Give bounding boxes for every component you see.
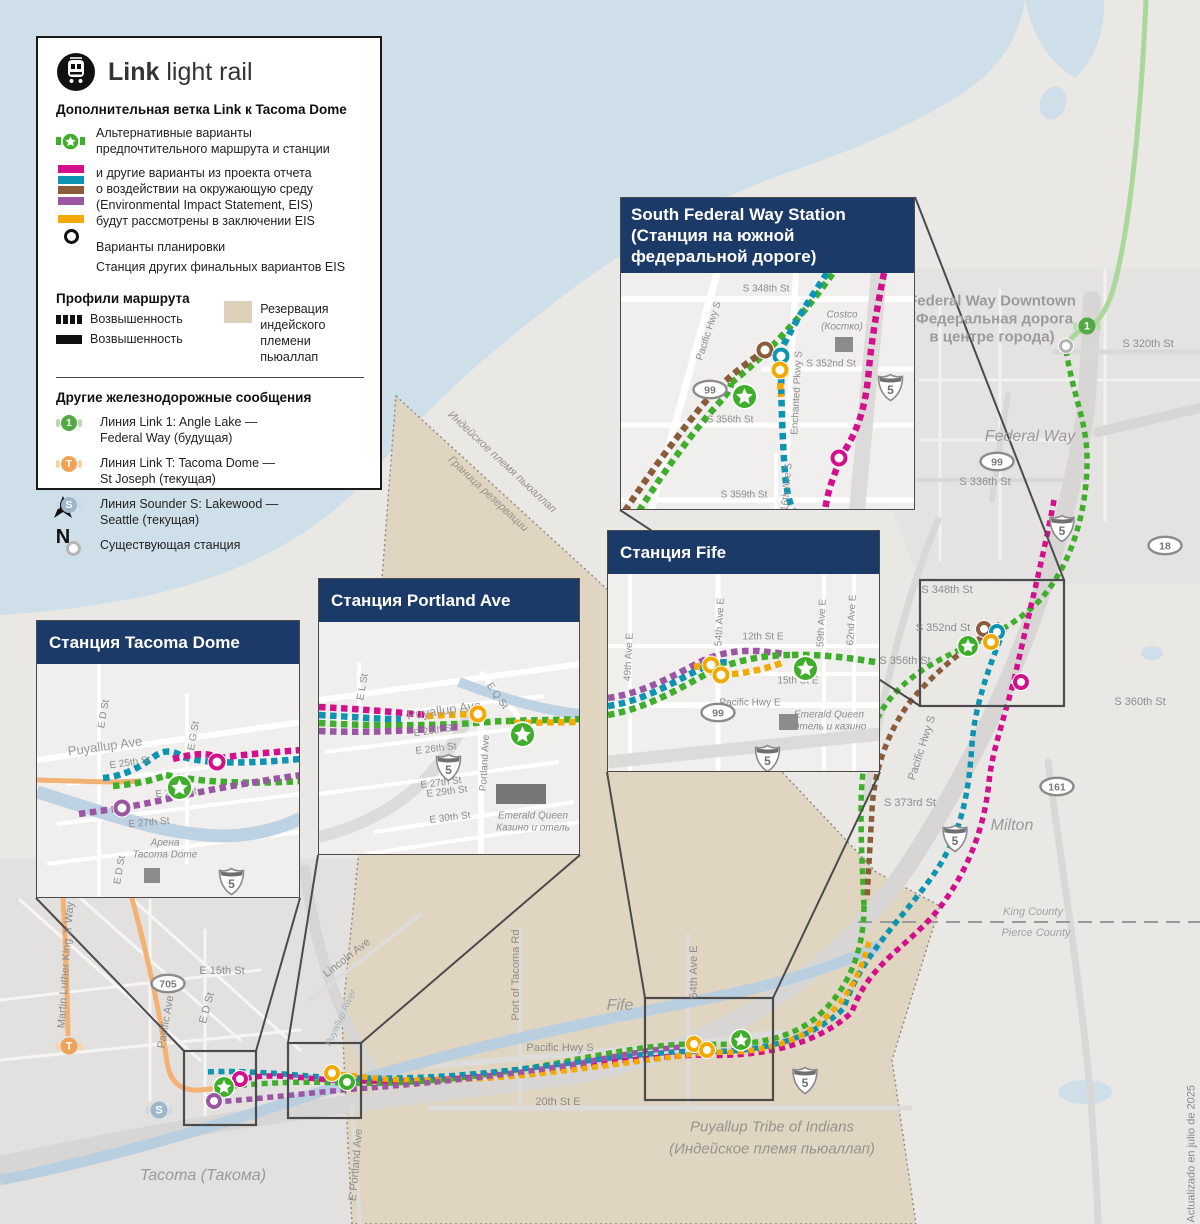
label-emerald-queen: Emerald Queen xyxy=(794,710,864,721)
inset-portland-map: Puyallup AveE 25th StE 26th StE Q StE L … xyxy=(319,622,579,854)
rail-item-existing: Существующая станция xyxy=(56,537,364,556)
purple-swatch xyxy=(58,197,84,205)
label-s-348th-st: S 348th St xyxy=(743,284,790,295)
design-options-label: Варианты планировки xyxy=(96,239,345,255)
link1-line-2: Federal Way (будущая) xyxy=(100,430,257,446)
legend-divider xyxy=(56,377,364,378)
inset-south-federal-way: South Federal Way Station(Станция на южн… xyxy=(620,197,915,510)
yellow-swatch xyxy=(58,215,84,223)
link1-line-1: Линия Link 1: Angle Lake — xyxy=(100,414,257,430)
profile-dashed-label: Возвышенность xyxy=(90,312,183,326)
label-12th-st-e: 12th St E xyxy=(742,632,783,643)
label-костко: (Костко) xyxy=(821,322,863,333)
label-казино-и-отель: Казино и отель xyxy=(496,823,570,834)
inset-title-line: Станция Portland Ave xyxy=(331,590,567,611)
legend-subtitle: Дополнительная ветка Link к Tacoma Dome xyxy=(56,102,364,117)
inset-portland-title: Станция Portland Ave xyxy=(319,579,579,622)
preferred-route-label: Альтернативные варианты предпочтительног… xyxy=(96,125,330,157)
profile-solid-row: Возвышенность xyxy=(56,332,224,346)
profile-dashed-row: Возвышенность xyxy=(56,312,224,326)
label-отель-и-казино: Отель и казино xyxy=(792,722,867,733)
linkt-line-1: Линия Link T: Tacoma Dome — xyxy=(100,455,275,471)
preferred-line-1: Альтернативные варианты xyxy=(96,125,330,141)
brand-bold: Link xyxy=(108,58,159,86)
inset-fife: Станция Fife xyxy=(607,530,880,772)
inset-sfw-title: South Federal Way Station(Станция на южн… xyxy=(621,198,914,273)
brand-title: Link light rail xyxy=(108,58,253,87)
linkt-line-2: St Joseph (текущая) xyxy=(100,471,275,487)
reservation-label: Резервация индейского племени пьюаллап xyxy=(260,301,364,365)
preferred-line-2: предпочтительного маршрута и станции xyxy=(96,141,330,157)
existing-station-label: Существующая станция xyxy=(100,537,240,553)
brand-row: Link light rail xyxy=(56,52,364,92)
eis-line-1: и другие варианты из проекта отчета xyxy=(96,165,345,181)
inset-portland-ave: Станция Portland Ave xyxy=(318,578,580,855)
other-rail-title: Другие железнодорожные сообщения xyxy=(56,390,364,405)
eis-label: и другие варианты из проекта отчета о во… xyxy=(96,165,345,275)
inset-title-line: South Federal Way Station xyxy=(631,204,904,225)
profiles-title: Профили маршрута xyxy=(56,291,224,306)
svg-text:5: 5 xyxy=(764,754,771,768)
sounder-badge-icon: S xyxy=(56,497,90,513)
other-station-label: Станция других финальных вариантов EIS xyxy=(96,259,345,275)
svg-text:99: 99 xyxy=(712,707,724,719)
legend-preferred-row: Альтернативные варианты предпочтительног… xyxy=(56,125,364,157)
teal-swatch xyxy=(58,176,84,184)
inset-title-line: федеральной дороге) xyxy=(631,246,904,267)
eis-line-3: (Environmental Impact Statement, EIS) xyxy=(96,197,345,213)
legend-panel: Link light rail Дополнительная ветка Lin… xyxy=(36,36,382,490)
rail-item-sounder: S Линия Sounder S: Lakewood — Seattle (т… xyxy=(56,496,364,528)
inset-tacoma-map: E D StPuyallup AveE 25th StE G StE 26th … xyxy=(37,664,299,897)
link1-badge-icon: 1 xyxy=(56,415,90,431)
svg-text:5: 5 xyxy=(445,763,452,777)
star-station-icon xyxy=(62,133,79,150)
inset-sfw-map: S 348th StPacific Hwy SCostco(Костко)S 3… xyxy=(621,273,914,509)
svg-text:5: 5 xyxy=(887,383,894,397)
map-stage: Federal Way Downtown(Федеральная дорогав… xyxy=(0,0,1200,1224)
inset-title-line: (Станция на южной xyxy=(631,225,904,246)
label-s-352nd-st: S 352nd St xyxy=(806,359,855,370)
link-train-icon xyxy=(56,52,96,92)
inset-tacoma-title: Станция Tacoma Dome xyxy=(37,621,299,664)
reservation-line-1: Резервация xyxy=(260,301,364,317)
svg-text:5: 5 xyxy=(228,877,235,891)
inset-fife-map: 49th Ave E54th Ave E12th St E59th Ave E6… xyxy=(608,574,879,771)
svg-text:99: 99 xyxy=(704,384,716,396)
inset-title-line: Станция Tacoma Dome xyxy=(49,632,287,653)
inset-title-line: Станция Fife xyxy=(620,542,867,563)
station-yellow xyxy=(772,362,789,379)
station-yellow xyxy=(713,667,730,684)
legend-eis-row: и другие варианты из проекта отчета о во… xyxy=(56,165,364,275)
inset-fife-title: Станция Fife xyxy=(608,531,879,574)
elevated-dashed-icon xyxy=(56,315,82,324)
sounder-line-2: Seattle (текущая) xyxy=(100,512,278,528)
label-s-359th-st: S 359th St xyxy=(721,490,768,501)
label-tacoma-dome: Tacoma Dome xyxy=(133,850,198,861)
magenta-swatch xyxy=(58,165,84,173)
rail-item-linkt: T Линия Link T: Tacoma Dome — St Joseph … xyxy=(56,455,364,487)
profiles-section: Профили маршрута Возвышенность Возвышенн… xyxy=(56,279,364,365)
elevated-solid-icon xyxy=(56,335,82,344)
reservation-row: Резервация индейского племени пьюаллап xyxy=(224,301,364,365)
station-magenta xyxy=(209,754,226,771)
reservation-line-2: индейского xyxy=(260,317,364,333)
station-magenta xyxy=(831,450,848,467)
other-station-icon xyxy=(64,229,79,244)
sounder-line-1: Линия Sounder S: Lakewood — xyxy=(100,496,278,512)
eis-line-2: о воздействии на окружающую среду xyxy=(96,181,345,197)
label-emerald-queen: Emerald Queen xyxy=(498,811,568,822)
label-арена: Арена xyxy=(151,838,180,849)
label-costco: Costco xyxy=(826,310,857,321)
profile-solid-label: Возвышенность xyxy=(90,332,183,346)
reservation-line-3: племени пьюаллап xyxy=(260,333,364,365)
update-credit: Actualizado en julio de 2025 xyxy=(1186,1085,1198,1223)
brand-rest: light rail xyxy=(159,58,252,86)
eis-line-4: будут рассмотрены в заключении EIS xyxy=(96,213,345,229)
reservation-swatch xyxy=(224,301,252,323)
inset-sfw-svg xyxy=(621,273,914,509)
rail-item-link1: 1 Линия Link 1: Angle Lake — Federal Way… xyxy=(56,414,364,446)
station-yellow xyxy=(470,706,487,723)
existing-station-icon xyxy=(56,538,90,556)
station-purple xyxy=(114,800,131,817)
inset-fife-svg xyxy=(608,574,879,771)
label-s-356th-st: S 356th St xyxy=(707,415,754,426)
eis-swatches xyxy=(56,165,86,275)
station-brown xyxy=(757,342,774,359)
brown-swatch xyxy=(58,186,84,194)
inset-tacoma-dome: Станция Tacoma Dome xyxy=(36,620,300,898)
preferred-route-icon xyxy=(56,125,86,157)
linkt-badge-icon: T xyxy=(56,456,90,472)
